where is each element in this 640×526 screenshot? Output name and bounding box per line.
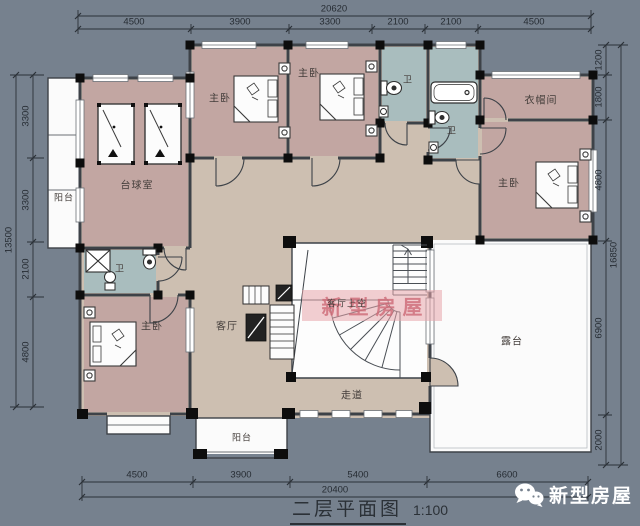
page-title: 二层平面图 — [290, 494, 406, 525]
dim-top-seg-4: 2100 — [440, 17, 461, 28]
dim-top-seg-3: 2100 — [387, 17, 408, 28]
dim-bottom-seg-3: 6600 — [496, 470, 517, 481]
dim-left-total: 13500 — [4, 227, 15, 253]
room-label-balcony-bottom: 阳台 — [232, 431, 252, 444]
watermark: 新型房屋 — [302, 290, 442, 321]
dim-right-total: 16850 — [609, 242, 620, 268]
room-label-living-void: 客厅上空 — [327, 297, 367, 310]
dim-top-seg-2: 3300 — [319, 17, 340, 28]
dim-right-seg-4: 2000 — [594, 429, 605, 450]
dim-left-seg-0: 3300 — [21, 105, 32, 126]
floor-plan-drawing — [0, 0, 640, 526]
bathtub-icon — [431, 82, 477, 103]
dim-left-seg-3: 4800 — [21, 341, 32, 362]
drawing-scale: 1:100 — [413, 502, 448, 518]
wechat-icon — [514, 482, 544, 508]
dim-left-seg-2: 2100 — [21, 258, 32, 279]
dim-top-total: 20620 — [321, 4, 347, 15]
brand-logo: 新型房屋 — [514, 481, 633, 508]
brand-logo-text: 新型房屋 — [549, 481, 633, 508]
room-label-bedroom-top1: 主卧 — [209, 90, 231, 105]
room-label-bedroom-top2: 主卧 — [298, 65, 320, 80]
room-label-corridor: 走道 — [341, 387, 363, 402]
room-label-balcony-left: 阳台 — [54, 191, 74, 204]
room-label-bath-top2: 卫 — [447, 124, 457, 137]
dim-right-seg-1: 1800 — [594, 86, 605, 107]
dim-right-seg-2: 4800 — [594, 169, 605, 190]
dim-top-seg-0: 4500 — [123, 17, 144, 28]
dim-bottom-seg-0: 4500 — [126, 470, 147, 481]
drawing-title-block: 二层平面图 1:100 — [290, 494, 448, 525]
balcony-left-floor — [48, 78, 80, 248]
room-label-bedroom-bottom-left: 主卧 — [141, 318, 163, 333]
dim-bottom-seg-2: 5400 — [347, 470, 368, 481]
shower-icon — [86, 250, 110, 272]
dim-left-seg-1: 3300 — [21, 189, 32, 210]
room-label-billiard: 台球室 — [121, 177, 154, 192]
dim-bottom-seg-1: 3900 — [230, 470, 251, 481]
floor-plan-page: 新型房屋 阳台 台球室 主卧 主卧 卫 卫 衣帽间 主卧 卫 主卧 客厅 客厅上… — [0, 0, 640, 526]
room-label-bath-left: 卫 — [115, 262, 125, 275]
dim-top-seg-5: 4500 — [523, 17, 544, 28]
room-label-living: 客厅 — [216, 318, 238, 333]
room-label-bedroom-right: 主卧 — [498, 175, 520, 190]
dim-top-seg-1: 3900 — [229, 17, 250, 28]
dim-right-seg-3: 6900 — [594, 317, 605, 338]
room-label-terrace: 露台 — [501, 333, 523, 348]
room-label-cloakroom: 衣帽间 — [525, 92, 558, 107]
dim-right-seg-0: 1200 — [594, 49, 605, 70]
room-label-bath-top1: 卫 — [403, 73, 413, 86]
